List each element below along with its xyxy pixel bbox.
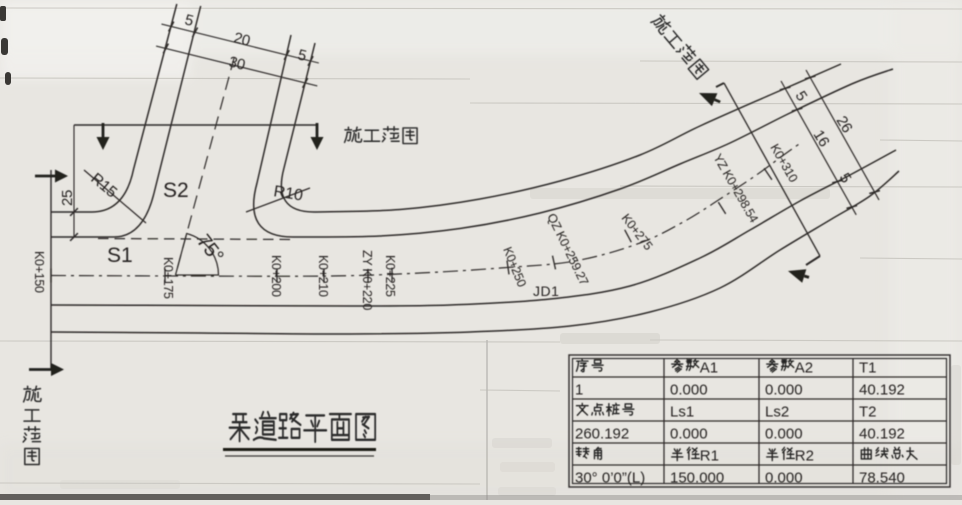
svg-text:25: 25	[59, 190, 76, 206]
svg-text:Ls2: Ls2	[765, 404, 789, 421]
svg-text:150.000: 150.000	[670, 470, 724, 487]
svg-text:78.540: 78.540	[859, 470, 905, 487]
svg-text:Ls1: Ls1	[670, 404, 694, 421]
svg-text:0.000: 0.000	[765, 426, 803, 443]
svg-text:S2: S2	[163, 179, 189, 202]
svg-text:K0+150: K0+150	[32, 251, 46, 293]
svg-text:40.192: 40.192	[859, 382, 905, 399]
svg-text:0.000: 0.000	[670, 382, 708, 399]
svg-text:A1: A1	[700, 360, 718, 377]
svg-text:A2: A2	[795, 360, 813, 377]
svg-text:0.000: 0.000	[670, 426, 708, 443]
svg-text:T2: T2	[859, 404, 877, 421]
svg-text:T1: T1	[859, 360, 877, 377]
svg-text:K0+175: K0+175	[161, 257, 175, 299]
svg-text:0.000: 0.000	[765, 382, 803, 399]
svg-text:K0+210: K0+210	[316, 255, 330, 297]
svg-text:R1: R1	[700, 448, 719, 465]
svg-text:0.000: 0.000	[765, 470, 803, 487]
svg-text:K0+200: K0+200	[269, 255, 283, 297]
svg-text:260.192: 260.192	[575, 426, 629, 443]
svg-text:R2: R2	[795, 448, 814, 465]
svg-text:30° 0’0”(L): 30° 0’0”(L)	[575, 470, 645, 487]
svg-text:1: 1	[575, 382, 583, 399]
svg-text:S1: S1	[107, 244, 133, 267]
svg-text:K0+225: K0+225	[383, 255, 397, 297]
svg-text:40.192: 40.192	[859, 426, 905, 443]
svg-text:ZY K0+220: ZY K0+220	[360, 250, 374, 310]
svg-text:JD1: JD1	[533, 283, 559, 299]
